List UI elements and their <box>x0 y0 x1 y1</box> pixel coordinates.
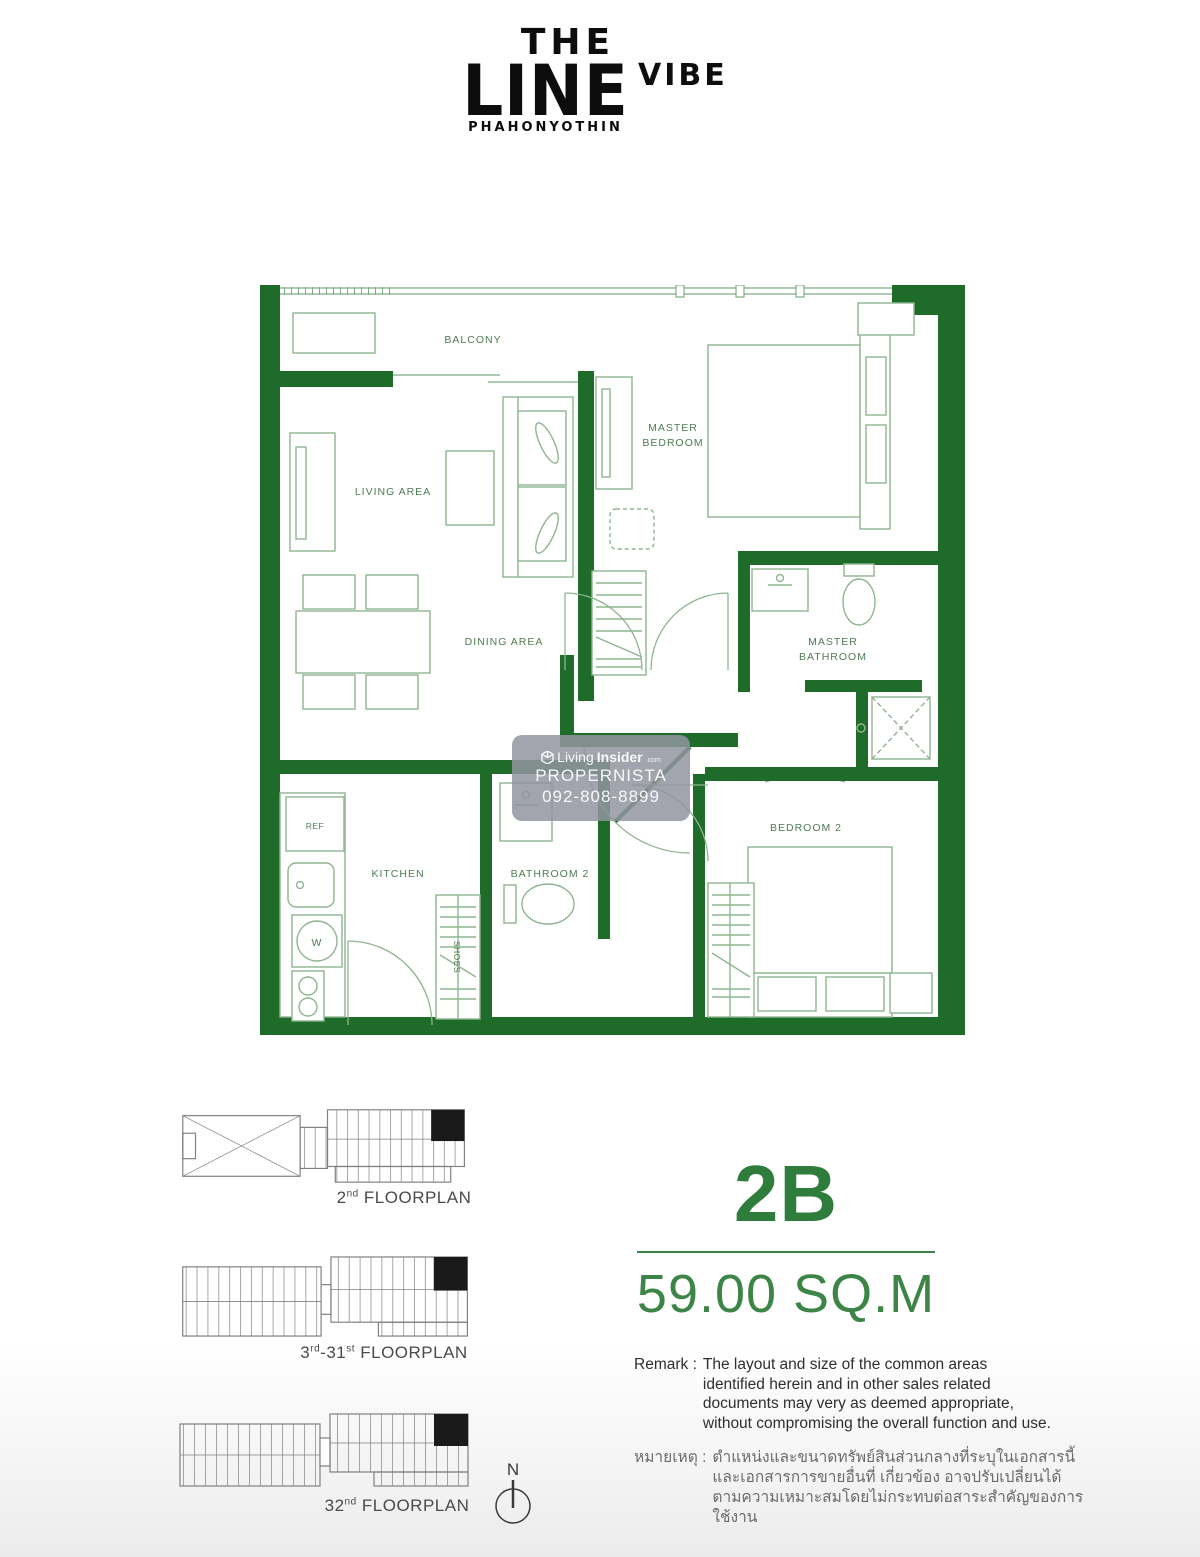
logo-vibe: VIBE <box>638 58 728 93</box>
washer-label: W <box>312 937 323 949</box>
label-3rd-31st-floorplan: 3rd-31st FLOORPLAN <box>274 1343 494 1363</box>
floorplan-drawing: BALCONY LIVING AREA DINING AREA MASTER B… <box>260 285 965 1035</box>
thumbnail-2nd-drawing <box>180 1100 475 1188</box>
floorplan-ordinal: nd <box>345 1496 357 1507</box>
unit-divider <box>637 1251 935 1253</box>
logo-subtitle: PHAHONYOTHIN <box>448 120 643 135</box>
remark-thai: หมายเหตุ : ตำแหน่งและขนาดทรัพย์สินส่วนกล… <box>634 1448 1094 1529</box>
highlighted-unit-3rd-31st <box>434 1257 468 1291</box>
unit-type: 2B <box>636 1154 936 1234</box>
living-area-label: LIVING AREA <box>355 486 431 498</box>
remark-english: Remark : The layout and size of the comm… <box>634 1355 1064 1434</box>
unit-floorplan: BALCONY LIVING AREA DINING AREA MASTER B… <box>260 285 965 1035</box>
master-bedroom-label-2: BEDROOM <box>642 437 703 449</box>
remark-en-text: The layout and size of the common areas … <box>703 1355 1051 1434</box>
floorplan-word: FLOORPLAN <box>355 1343 468 1362</box>
master-bathroom-label-2: BATHROOM <box>799 651 867 663</box>
floorplan-ordinal-2: st <box>346 1343 355 1354</box>
watermark-brand-suffix: .com <box>646 757 661 764</box>
master-bathroom-label-1: MASTER <box>808 636 858 648</box>
floorplan-word: FLOORPLAN <box>359 1188 472 1207</box>
balcony-label: BALCONY <box>444 334 501 346</box>
unit-info: 2B 59.00 SQ.M <box>636 1154 936 1325</box>
label-2nd-floorplan: 2nd FLOORPLAN <box>294 1188 514 1208</box>
floorplan-number: 2 <box>337 1188 347 1207</box>
thumbnail-32nd-drawing <box>178 1410 478 1488</box>
highlighted-unit-2nd <box>431 1110 464 1141</box>
remark-en-label: Remark : <box>634 1355 697 1434</box>
compass-icon <box>489 1476 537 1533</box>
floorplan-number-2: -31 <box>320 1343 346 1362</box>
watermark-phone: 092-808-8899 <box>542 787 660 807</box>
floorplan-word: FLOORPLAN <box>357 1496 470 1515</box>
highlighted-unit-32nd <box>434 1414 468 1446</box>
watermark: LivingInsider.com PROPERNISTA 092-808-88… <box>512 735 690 821</box>
remark-th-label: หมายเหตุ : <box>634 1448 706 1529</box>
bedroom2-label: BEDROOM 2 <box>770 822 842 834</box>
watermark-agency: PROPERNISTA <box>535 766 667 786</box>
brochure-page: THE LINE VIBE PHAHONYOTHIN <box>0 0 1200 1557</box>
master-bedroom-label-1: MASTER <box>648 422 698 434</box>
watermark-brand-light: Living <box>557 749 594 765</box>
floorplan-ordinal: rd <box>310 1343 320 1354</box>
dining-area-label: DINING AREA <box>465 636 544 648</box>
ref-label: REF <box>306 821 325 831</box>
thumbnail-3rd-31st-floorplan <box>180 1255 478 1345</box>
label-32nd-floorplan: 32nd FLOORPLAN <box>287 1496 507 1516</box>
remark-th-text: ตำแหน่งและขนาดทรัพย์สินส่วนกลางที่ระบุใน… <box>712 1448 1094 1529</box>
shoes-label: SHOES <box>452 941 462 973</box>
livinginsider-logo-icon <box>541 751 554 764</box>
floorplan-ordinal: nd <box>347 1188 359 1199</box>
bathroom2-label: BATHROOM 2 <box>511 868 590 880</box>
thumbnail-3rd-31st-drawing <box>180 1255 478 1340</box>
watermark-brand: LivingInsider.com <box>541 749 661 765</box>
floorplan-number: 32 <box>325 1496 345 1515</box>
kitchen-label: KITCHEN <box>371 868 424 880</box>
thumbnail-32nd-floorplan <box>178 1410 478 1493</box>
watermark-brand-bold: Insider <box>597 749 643 765</box>
thumbnail-2nd-floorplan <box>180 1100 475 1193</box>
floorplan-number: 3 <box>300 1343 310 1362</box>
compass-dial-drawing <box>489 1476 537 1528</box>
unit-area: 59.00 SQ.M <box>636 1263 936 1325</box>
